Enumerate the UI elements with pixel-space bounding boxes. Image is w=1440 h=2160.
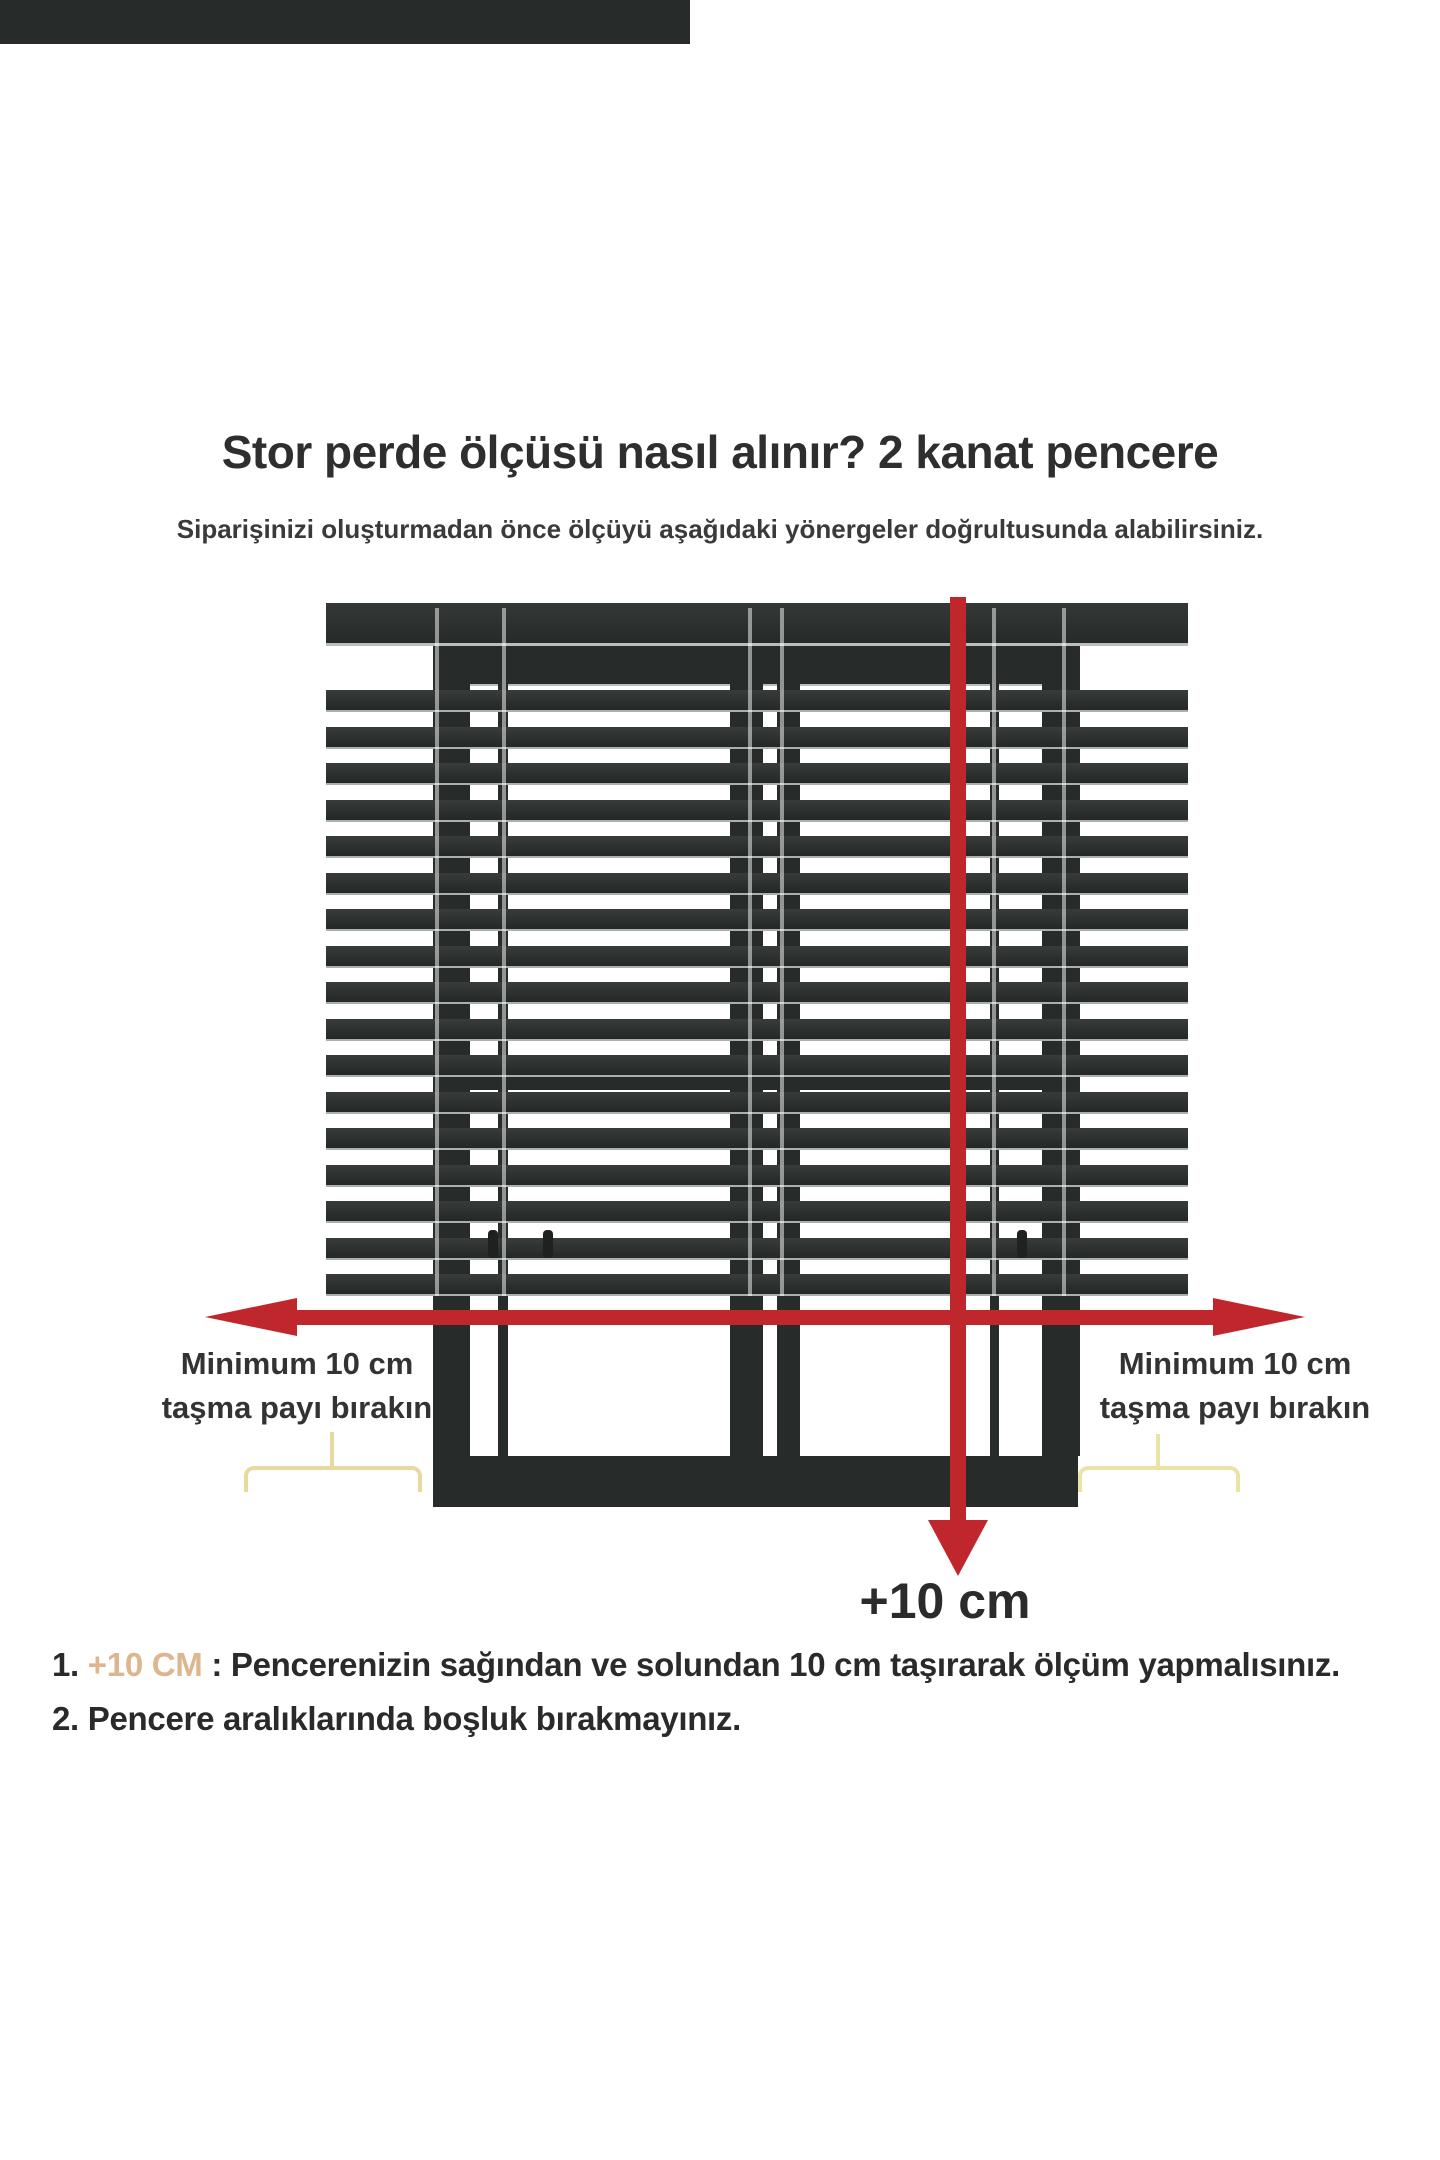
blind-slat [326, 1128, 1188, 1150]
left-brace-stem [330, 1432, 334, 1468]
instructions-list: 1. +10 CM : Pencerenizin sağından ve sol… [52, 1638, 1412, 1746]
blind-slat [326, 690, 1188, 712]
ladder-string [1062, 608, 1066, 1296]
blind-slat [326, 1201, 1188, 1223]
window-handle-right [1017, 1230, 1027, 1258]
instruction-2-number: 2. [52, 1700, 79, 1737]
instruction-1-text: : Pencerenizin sağından ve solundan 10 c… [202, 1646, 1339, 1683]
blind-head-rail [326, 603, 1188, 646]
right-overhang-brace-icon [1078, 1466, 1240, 1492]
blind-slat [326, 1165, 1188, 1187]
blind-slat [326, 982, 1188, 1004]
width-arrow-right-head-icon [1213, 1298, 1305, 1336]
height-arrow-shaft [950, 597, 966, 1522]
ladder-string [780, 608, 784, 1296]
instruction-2: 2. Pencere aralıklarında boşluk bırakmay… [52, 1692, 1412, 1746]
page-title: Stor perde ölçüsü nasıl alınır? 2 kanat … [0, 425, 1440, 479]
instruction-1-highlight: +10 CM [88, 1646, 203, 1683]
left-overhang-brace-icon [244, 1466, 422, 1492]
window-handle-left-1 [488, 1230, 498, 1258]
blind-slat [326, 763, 1188, 785]
ladder-string [502, 608, 506, 1296]
blind-slat [326, 800, 1188, 822]
ladder-string [748, 608, 752, 1296]
right-overhang-label: Minimum 10 cm taşma payı bırakın [1075, 1342, 1395, 1430]
page-subtitle: Siparişinizi oluşturmadan önce ölçüyü aş… [0, 514, 1440, 545]
window-sill [0, 0, 690, 44]
left-overhang-line2: taşma payı bırakın [147, 1386, 447, 1430]
instruction-2-text: Pencere aralıklarında boşluk bırakmayını… [88, 1700, 741, 1737]
blind-slat [326, 873, 1188, 895]
blind-slat [326, 1238, 1188, 1260]
blind-slat [326, 909, 1188, 931]
instruction-1-number: 1. [52, 1646, 79, 1683]
right-overhang-line1: Minimum 10 cm [1075, 1342, 1395, 1386]
width-arrow-shaft [290, 1310, 1220, 1325]
measurement-guide-page: Stor perde ölçüsü nasıl alınır? 2 kanat … [0, 0, 1440, 2160]
right-overhang-line2: taşma payı bırakın [1075, 1386, 1395, 1430]
width-arrow-left-head-icon [205, 1298, 297, 1336]
blind-slat [326, 1019, 1188, 1041]
plus10-label: +10 cm [795, 1572, 1095, 1630]
blind-slat [326, 836, 1188, 858]
blind-slat [326, 1274, 1188, 1296]
window-bottom-rail [433, 1456, 1078, 1507]
blind-slat [326, 1055, 1188, 1077]
blind-slat [326, 727, 1188, 749]
instruction-1: 1. +10 CM : Pencerenizin sağından ve sol… [52, 1638, 1412, 1692]
left-overhang-label: Minimum 10 cm taşma payı bırakın [147, 1342, 447, 1430]
ladder-string [992, 608, 996, 1296]
window-diagram [0, 0, 1440, 44]
right-brace-stem [1156, 1434, 1160, 1468]
window-handle-left-2 [543, 1230, 553, 1258]
ladder-string [435, 608, 439, 1296]
height-arrow-down-head-icon [928, 1520, 988, 1576]
blind-slat [326, 946, 1188, 968]
blind-slat [326, 1092, 1188, 1114]
left-overhang-line1: Minimum 10 cm [147, 1342, 447, 1386]
